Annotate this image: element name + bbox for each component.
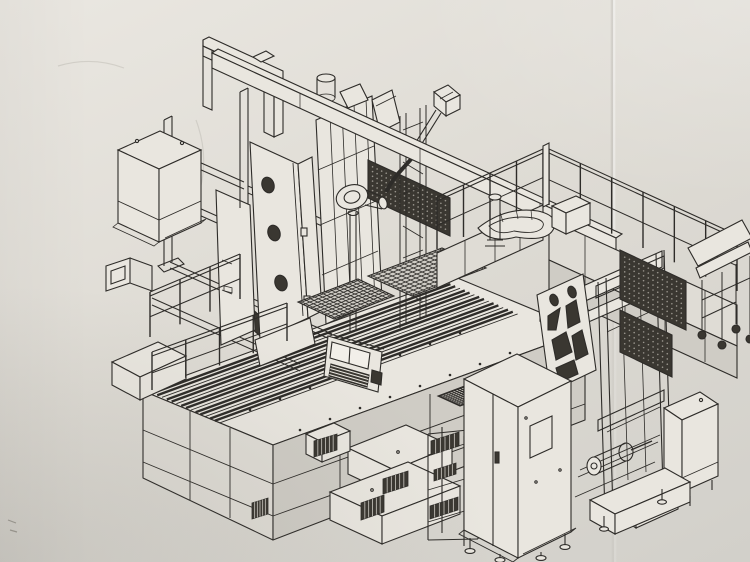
bolt-hole bbox=[279, 398, 282, 401]
mesh-dot bbox=[676, 286, 678, 288]
mesh-dot bbox=[666, 286, 668, 288]
mesh-dot bbox=[629, 283, 631, 285]
mesh-dot bbox=[657, 296, 659, 298]
mesh-dot bbox=[652, 309, 654, 311]
mesh-dot bbox=[376, 168, 378, 170]
mesh-dot bbox=[638, 268, 640, 270]
mesh-dot bbox=[629, 345, 631, 347]
mesh-dot bbox=[662, 289, 664, 291]
mesh-dot bbox=[445, 209, 447, 211]
bolt-hole bbox=[429, 343, 432, 346]
mesh-dot bbox=[408, 197, 410, 199]
mesh-dot bbox=[671, 283, 673, 285]
mesh-dot bbox=[643, 270, 645, 272]
mesh-dot bbox=[376, 187, 378, 189]
mesh-dot bbox=[643, 347, 645, 349]
mesh-dot bbox=[662, 294, 664, 296]
mesh-dot bbox=[629, 268, 631, 270]
mesh-dot bbox=[666, 281, 668, 283]
mesh-dot bbox=[417, 206, 419, 208]
mesh-dot bbox=[638, 324, 640, 326]
mesh-dot bbox=[404, 209, 406, 211]
mesh-dot bbox=[643, 357, 645, 359]
mesh-dot bbox=[445, 224, 447, 226]
mesh-dot bbox=[638, 345, 640, 347]
mesh-dot bbox=[431, 208, 433, 210]
mesh-dot bbox=[417, 216, 419, 218]
mesh-dot bbox=[624, 276, 626, 278]
mesh-dot bbox=[408, 188, 410, 190]
mesh-dot bbox=[395, 196, 397, 198]
mesh-dot bbox=[657, 348, 659, 350]
mesh-dot bbox=[662, 313, 664, 315]
mesh-dot bbox=[671, 298, 673, 300]
mesh-dot bbox=[629, 263, 631, 265]
mesh-dot bbox=[633, 266, 635, 268]
door-handle bbox=[495, 452, 499, 463]
bolt-hole bbox=[459, 332, 462, 335]
mesh-dot bbox=[647, 272, 649, 274]
mesh-dot bbox=[652, 346, 654, 348]
bolt-hole bbox=[299, 429, 302, 432]
mesh-dot bbox=[372, 171, 374, 173]
mesh-dot bbox=[652, 299, 654, 301]
mesh-dot bbox=[662, 308, 664, 310]
mesh-dot bbox=[657, 354, 659, 356]
mesh-dot bbox=[647, 307, 649, 309]
mesh-dot bbox=[633, 342, 635, 344]
mesh-dot bbox=[643, 280, 645, 282]
mesh-dot bbox=[629, 324, 631, 326]
mesh-dot bbox=[431, 213, 433, 215]
mesh-dot bbox=[629, 319, 631, 321]
mesh-dot bbox=[662, 279, 664, 281]
mesh-dot bbox=[440, 221, 442, 223]
mesh-dot bbox=[413, 195, 415, 197]
mesh-dot bbox=[680, 288, 682, 290]
mesh-dot bbox=[633, 261, 635, 263]
mesh-dot bbox=[408, 183, 410, 185]
main-column-with-holes bbox=[250, 142, 322, 366]
mesh-dot bbox=[657, 343, 659, 345]
mesh-dot bbox=[624, 261, 626, 263]
mesh-dot bbox=[624, 343, 626, 345]
mesh-dot bbox=[648, 360, 650, 362]
mesh-dot bbox=[395, 205, 397, 207]
mesh-dot bbox=[643, 326, 645, 328]
mesh-dot bbox=[643, 290, 645, 292]
mesh-dot bbox=[381, 180, 383, 182]
mesh-dot bbox=[643, 285, 645, 287]
mesh-dot bbox=[633, 348, 635, 350]
mesh-dot bbox=[680, 283, 682, 285]
mesh-dot bbox=[624, 327, 626, 329]
mesh-dot bbox=[647, 282, 649, 284]
mesh-dot bbox=[671, 318, 673, 320]
mesh-dot bbox=[372, 185, 374, 187]
mesh-dot bbox=[680, 298, 682, 300]
mesh-dot bbox=[426, 220, 428, 222]
mesh-dot bbox=[657, 301, 659, 303]
mesh-dot bbox=[404, 195, 406, 197]
mesh-dot bbox=[657, 364, 659, 366]
mesh-dot bbox=[624, 286, 626, 288]
mesh-dot bbox=[680, 302, 682, 304]
mesh-dot bbox=[629, 293, 631, 295]
mesh-dot bbox=[445, 228, 447, 230]
mesh-dot bbox=[638, 302, 640, 304]
mesh-dot bbox=[422, 218, 424, 220]
mesh-dot bbox=[417, 201, 419, 203]
mesh-dot bbox=[676, 315, 678, 317]
mesh-dot bbox=[426, 191, 428, 193]
mesh-dot bbox=[657, 291, 659, 293]
mesh-dot bbox=[426, 201, 428, 203]
mesh-dot bbox=[657, 277, 659, 279]
mesh-dot bbox=[647, 267, 649, 269]
mesh-dot bbox=[643, 336, 645, 338]
mesh-dot bbox=[680, 307, 682, 309]
mesh-dot bbox=[643, 342, 645, 344]
control-cabinet bbox=[459, 354, 576, 562]
mesh-dot bbox=[436, 196, 438, 198]
mesh-dot bbox=[633, 332, 635, 334]
mesh-dot bbox=[376, 192, 378, 194]
mesh-dot bbox=[629, 298, 631, 300]
mesh-dot bbox=[662, 345, 664, 347]
mesh-dot bbox=[413, 199, 415, 201]
mesh-dot bbox=[440, 217, 442, 219]
mesh-dot bbox=[647, 287, 649, 289]
mesh-dot bbox=[666, 301, 668, 303]
mesh-dot bbox=[404, 200, 406, 202]
mesh-dot bbox=[680, 317, 682, 319]
mesh-dot bbox=[652, 284, 654, 286]
mesh-dot bbox=[395, 191, 397, 193]
mesh-dot bbox=[671, 288, 673, 290]
photo-of-technical-drawing bbox=[0, 0, 750, 562]
mesh-dot bbox=[440, 212, 442, 214]
mesh-dot bbox=[647, 302, 649, 304]
mesh-dot bbox=[372, 166, 374, 168]
mesh-dot bbox=[638, 283, 640, 285]
mesh-dot bbox=[633, 295, 635, 297]
bolt-hole bbox=[249, 409, 252, 412]
mesh-dot bbox=[413, 204, 415, 206]
mesh-dot bbox=[676, 305, 678, 307]
mesh-dot bbox=[440, 207, 442, 209]
mesh-dot bbox=[671, 278, 673, 280]
mesh-dot bbox=[417, 197, 419, 199]
mesh-dot bbox=[652, 362, 654, 364]
mesh-dot bbox=[413, 185, 415, 187]
mesh-dot bbox=[385, 182, 387, 184]
mesh-dot bbox=[376, 197, 378, 199]
mesh-dot bbox=[629, 278, 631, 280]
mesh-dot bbox=[657, 272, 659, 274]
mesh-dot bbox=[633, 353, 635, 355]
mesh-dot bbox=[376, 173, 378, 175]
mesh-dot bbox=[422, 208, 424, 210]
mesh-dot bbox=[629, 273, 631, 275]
mesh-dot bbox=[652, 336, 654, 338]
mesh-dot bbox=[648, 354, 650, 356]
mesh-dot bbox=[652, 289, 654, 291]
mesh-dot bbox=[381, 175, 383, 177]
mesh-dot bbox=[624, 332, 626, 334]
mesh-dot bbox=[657, 287, 659, 289]
bolt-hole bbox=[509, 352, 512, 355]
mesh-dot bbox=[633, 285, 635, 287]
mesh-dot bbox=[643, 295, 645, 297]
cabinet-doors bbox=[464, 379, 518, 558]
mesh-dot bbox=[440, 202, 442, 204]
bolt-hole bbox=[309, 387, 312, 390]
mesh-dot bbox=[676, 290, 678, 292]
mesh-dot bbox=[633, 300, 635, 302]
mesh-dot bbox=[381, 194, 383, 196]
mesh-dot bbox=[633, 337, 635, 339]
cable-channel bbox=[106, 258, 152, 291]
mesh-dot bbox=[381, 189, 383, 191]
mesh-dot bbox=[413, 214, 415, 216]
mesh-dot bbox=[676, 281, 678, 283]
mesh-dot bbox=[385, 196, 387, 198]
mesh-dot bbox=[390, 175, 392, 177]
mesh-dot bbox=[676, 295, 678, 297]
mesh-dot bbox=[376, 178, 378, 180]
mesh-dot bbox=[657, 311, 659, 313]
mesh-dot bbox=[413, 209, 415, 211]
mesh-dot bbox=[638, 273, 640, 275]
mesh-dot bbox=[666, 358, 668, 360]
mesh-dot bbox=[624, 256, 626, 258]
cabinet-side bbox=[518, 381, 571, 558]
mesh-dot bbox=[624, 348, 626, 350]
mesh-dot bbox=[390, 203, 392, 205]
mesh-dot bbox=[426, 215, 428, 217]
mesh-dot bbox=[395, 186, 397, 188]
mesh-dot bbox=[633, 327, 635, 329]
mesh-dot bbox=[633, 280, 635, 282]
mesh-dot bbox=[662, 303, 664, 305]
mesh-dot bbox=[376, 182, 378, 184]
mesh-dot bbox=[633, 275, 635, 277]
mesh-dot bbox=[666, 348, 668, 350]
mesh-dot bbox=[662, 284, 664, 286]
mesh-dot bbox=[652, 330, 654, 332]
mesh-dot bbox=[648, 344, 650, 346]
mesh-dot bbox=[662, 356, 664, 358]
mesh-dot bbox=[643, 352, 645, 354]
mesh-dot bbox=[652, 351, 654, 353]
mesh-dot bbox=[666, 337, 668, 339]
mesh-dot bbox=[666, 276, 668, 278]
mesh-dot bbox=[648, 339, 650, 341]
mesh-dot bbox=[652, 304, 654, 306]
mesh-dot bbox=[624, 296, 626, 298]
mesh-dot bbox=[381, 170, 383, 172]
mesh-dot bbox=[662, 361, 664, 363]
mesh-dot bbox=[666, 369, 668, 371]
mesh-dot bbox=[422, 189, 424, 191]
mesh-dot bbox=[633, 290, 635, 292]
mesh-dot bbox=[652, 270, 654, 272]
mesh-dot bbox=[652, 357, 654, 359]
mesh-dot bbox=[385, 177, 387, 179]
mesh-dot bbox=[666, 315, 668, 317]
mesh-dot bbox=[657, 333, 659, 335]
mesh-dot bbox=[657, 306, 659, 308]
mesh-dot bbox=[422, 204, 424, 206]
mesh-dot bbox=[652, 279, 654, 281]
mesh-dot bbox=[662, 274, 664, 276]
mesh-dot bbox=[440, 226, 442, 228]
mesh-dot bbox=[372, 180, 374, 182]
bolt-hole bbox=[449, 374, 452, 377]
mesh-dot bbox=[629, 335, 631, 337]
mesh-dot bbox=[638, 292, 640, 294]
mesh-dot bbox=[671, 313, 673, 315]
mesh-dot bbox=[624, 291, 626, 293]
mesh-dot bbox=[624, 317, 626, 319]
mesh-dot bbox=[624, 322, 626, 324]
mesh-dot bbox=[395, 181, 397, 183]
mesh-dot bbox=[417, 211, 419, 213]
mesh-dot bbox=[372, 176, 374, 178]
mesh-dot bbox=[638, 334, 640, 336]
mesh-dot bbox=[390, 198, 392, 200]
mesh-dot bbox=[652, 341, 654, 343]
mesh-dot bbox=[676, 300, 678, 302]
mesh-dot bbox=[431, 222, 433, 224]
mesh-dot bbox=[662, 340, 664, 342]
mesh-dot bbox=[666, 306, 668, 308]
mesh-dot bbox=[624, 266, 626, 268]
mesh-dot bbox=[404, 205, 406, 207]
mesh-dot bbox=[431, 194, 433, 196]
fence-corner-post bbox=[543, 143, 549, 207]
mesh-dot bbox=[404, 190, 406, 192]
mesh-dot bbox=[662, 299, 664, 301]
mesh-dot bbox=[445, 219, 447, 221]
mesh-dot bbox=[643, 299, 645, 301]
mesh-dot bbox=[408, 202, 410, 204]
mesh-dot bbox=[666, 342, 668, 344]
mesh-dot bbox=[629, 340, 631, 342]
mesh-dot bbox=[633, 271, 635, 273]
mesh-dot bbox=[652, 294, 654, 296]
mesh-dot bbox=[385, 172, 387, 174]
pendant-keypad bbox=[371, 370, 382, 385]
hanging-electrical-box bbox=[113, 131, 206, 246]
mesh-dot bbox=[671, 308, 673, 310]
bolt-hole bbox=[419, 385, 422, 388]
bolt-hole bbox=[479, 363, 482, 366]
mesh-dot bbox=[431, 217, 433, 219]
mesh-dot bbox=[652, 275, 654, 277]
mesh-dot bbox=[633, 321, 635, 323]
bolt-hole bbox=[389, 396, 392, 399]
mesh-dot bbox=[648, 333, 650, 335]
mesh-dot bbox=[381, 185, 383, 187]
mesh-dot bbox=[629, 350, 631, 352]
mesh-dot bbox=[662, 366, 664, 368]
mesh-dot bbox=[666, 353, 668, 355]
mesh-dot bbox=[648, 328, 650, 330]
mesh-dot bbox=[629, 329, 631, 331]
mesh-dot bbox=[445, 200, 447, 202]
mesh-dot bbox=[680, 312, 682, 314]
mesh-dot bbox=[431, 203, 433, 205]
mesh-dot bbox=[395, 200, 397, 202]
mesh-dot bbox=[643, 304, 645, 306]
mesh-dot bbox=[426, 210, 428, 212]
mesh-dot bbox=[408, 192, 410, 194]
mesh-dot bbox=[390, 194, 392, 196]
mesh-dot bbox=[647, 297, 649, 299]
mesh-dot bbox=[676, 310, 678, 312]
mesh-dot bbox=[372, 195, 374, 197]
mesh-dot bbox=[629, 259, 631, 261]
mesh-dot bbox=[648, 349, 650, 351]
mesh-dot bbox=[638, 329, 640, 331]
mesh-dot bbox=[643, 265, 645, 267]
mesh-dot bbox=[390, 189, 392, 191]
mesh-dot bbox=[657, 282, 659, 284]
mesh-dot bbox=[404, 181, 406, 183]
mesh-dot bbox=[657, 359, 659, 361]
mesh-dot bbox=[417, 192, 419, 194]
mesh-dot bbox=[372, 190, 374, 192]
mesh-dot bbox=[408, 207, 410, 209]
mesh-dot bbox=[647, 292, 649, 294]
mesh-dot bbox=[422, 194, 424, 196]
mesh-dot bbox=[643, 275, 645, 277]
mesh-dot bbox=[671, 303, 673, 305]
mesh-dot bbox=[662, 335, 664, 337]
bolt-hole bbox=[329, 418, 332, 421]
mesh-dot bbox=[638, 263, 640, 265]
mesh-dot bbox=[638, 339, 640, 341]
mesh-dot bbox=[638, 287, 640, 289]
mesh-dot bbox=[671, 293, 673, 295]
mesh-dot bbox=[638, 278, 640, 280]
mesh-dot bbox=[624, 338, 626, 340]
mesh-dot bbox=[445, 214, 447, 216]
bolt-hole bbox=[359, 407, 362, 410]
mesh-dot bbox=[638, 355, 640, 357]
mesh-dot bbox=[426, 196, 428, 198]
mesh-dot bbox=[629, 288, 631, 290]
mesh-dot bbox=[408, 211, 410, 213]
mesh-dot bbox=[666, 311, 668, 313]
mesh-dot bbox=[657, 338, 659, 340]
mesh-dot bbox=[638, 350, 640, 352]
mesh-dot bbox=[666, 363, 668, 365]
horizontal-spindle bbox=[587, 441, 652, 475]
machine-isometric-drawing bbox=[0, 0, 750, 562]
mesh-dot bbox=[680, 322, 682, 324]
mesh-dot bbox=[431, 198, 433, 200]
mesh-dot bbox=[422, 213, 424, 215]
mesh-dot bbox=[624, 271, 626, 273]
mesh-dot bbox=[643, 331, 645, 333]
mesh-dot bbox=[404, 186, 406, 188]
mesh-dot bbox=[680, 293, 682, 295]
mesh-dot bbox=[662, 351, 664, 353]
mesh-dot bbox=[426, 206, 428, 208]
